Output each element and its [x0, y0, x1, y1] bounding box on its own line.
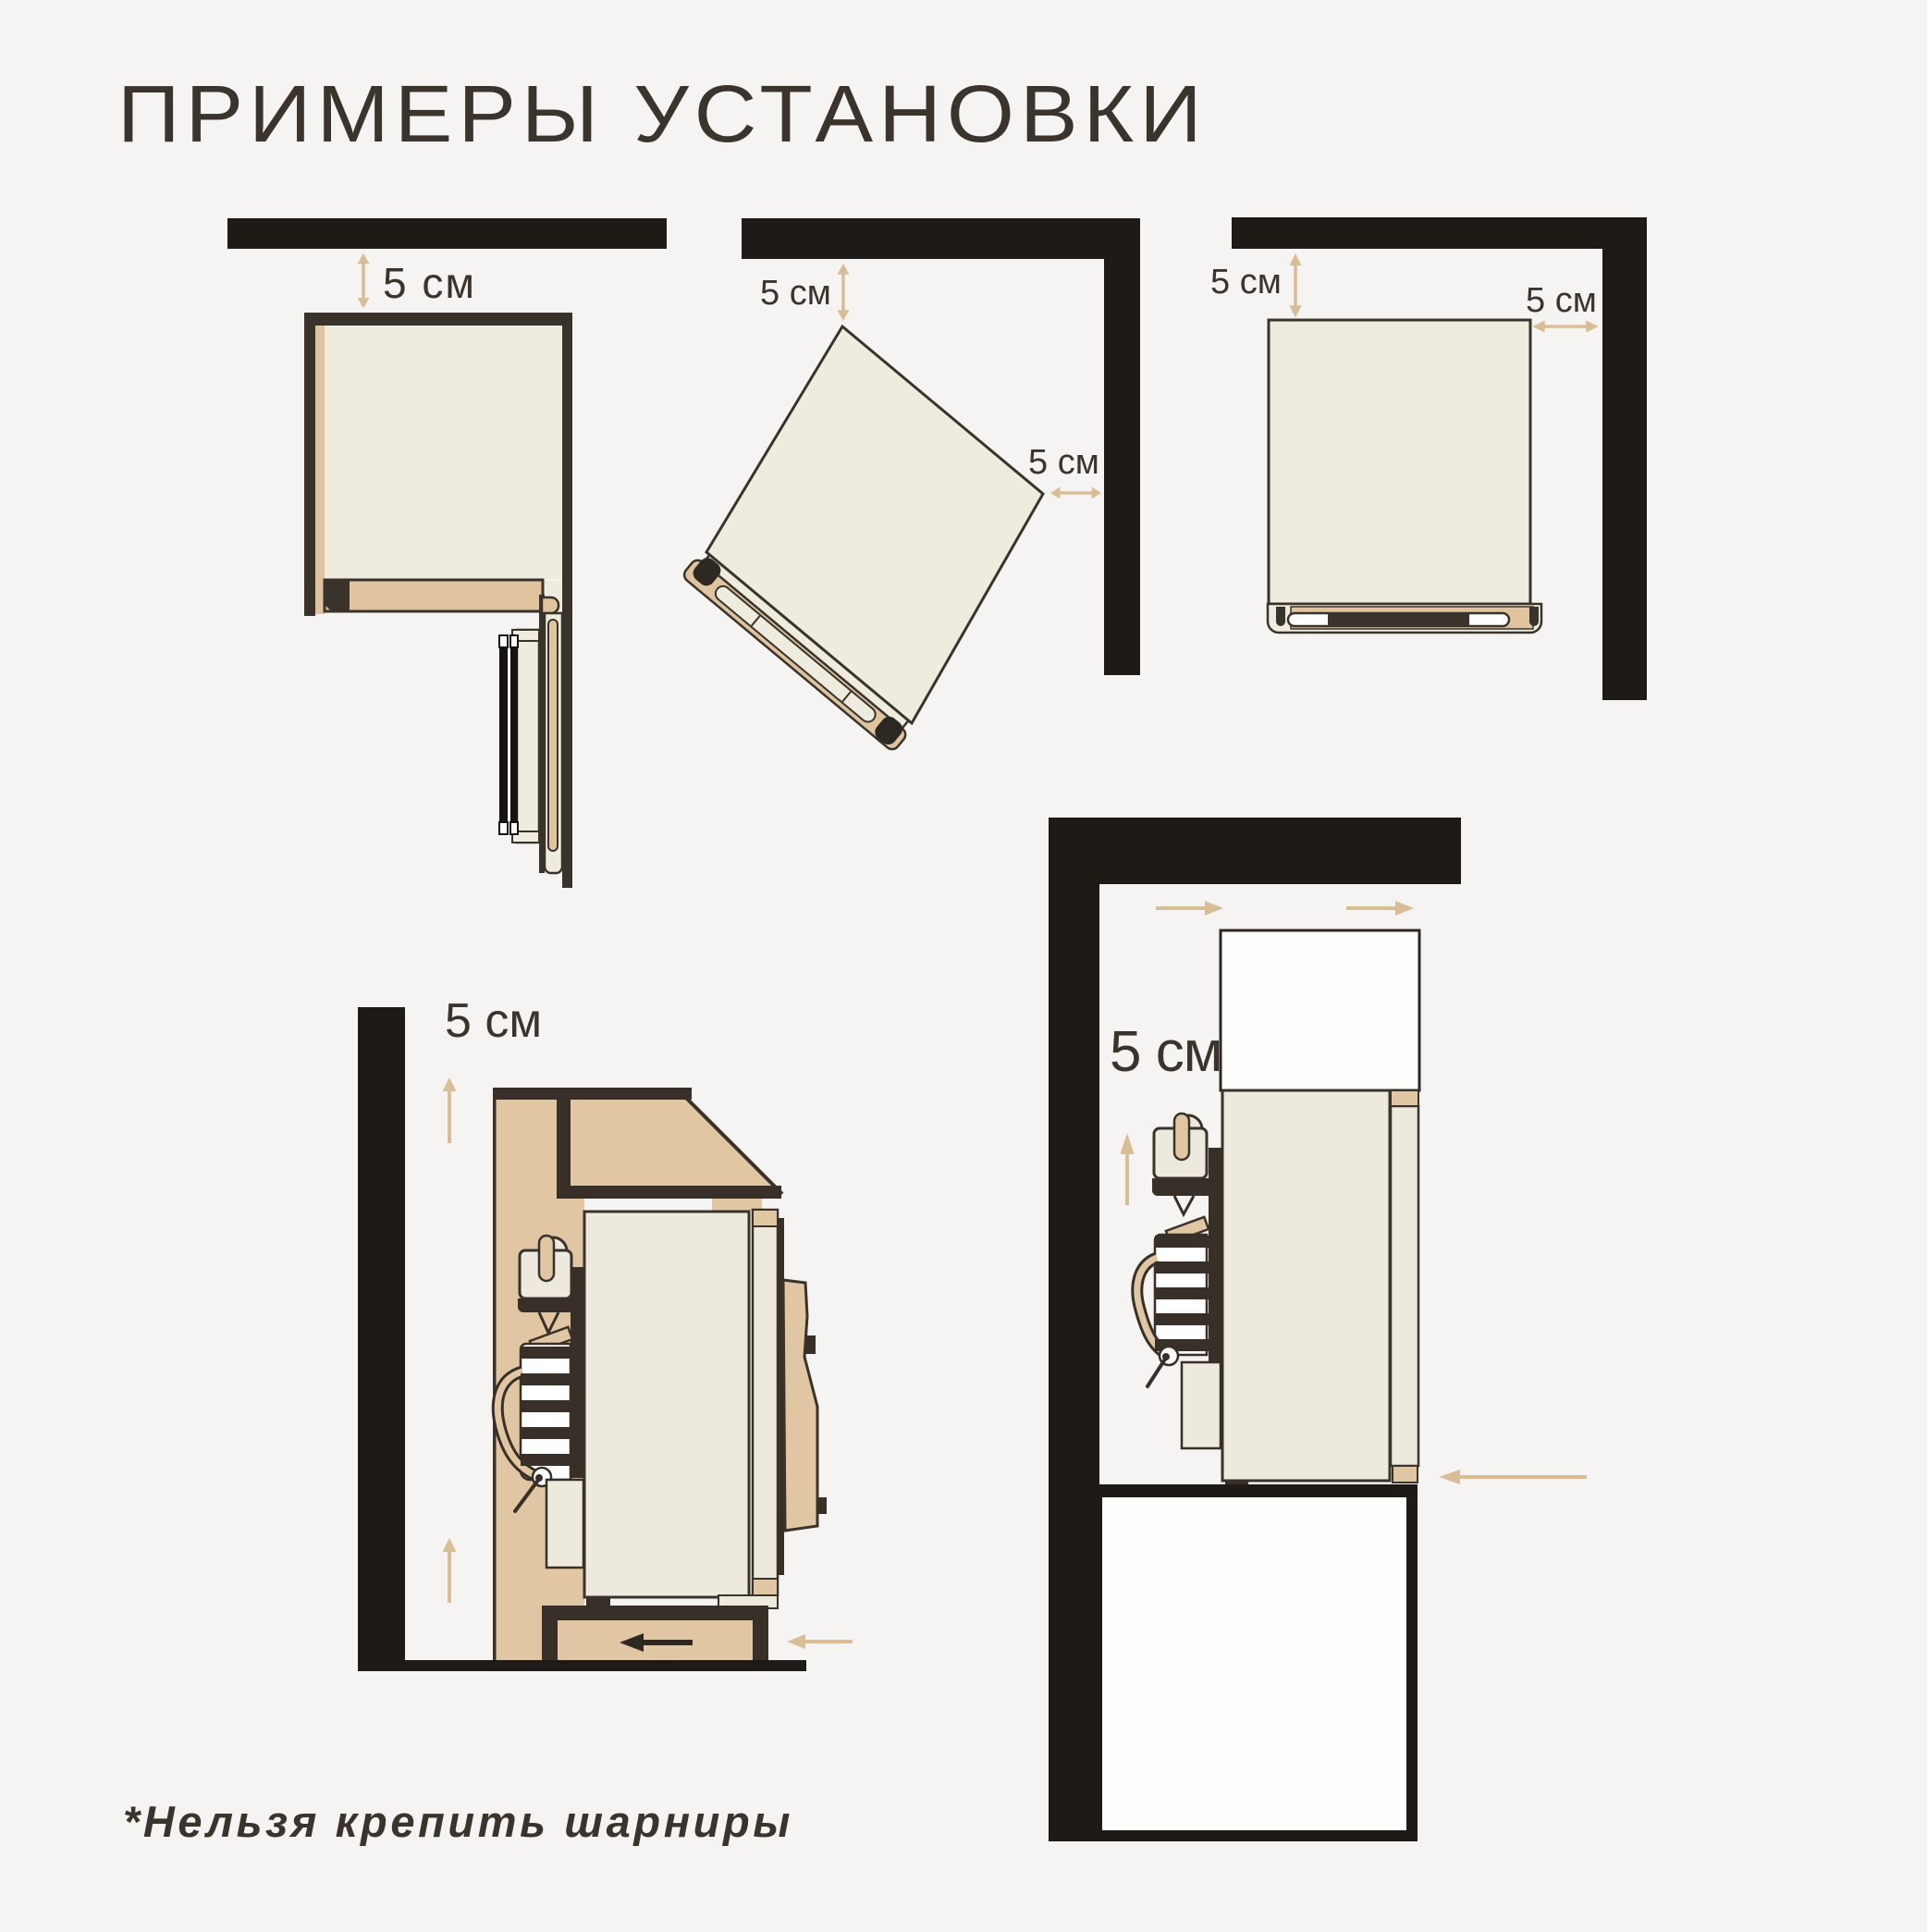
svg-text:ПРИМЕРЫ УСТАНОВКИ: ПРИМЕРЫ УСТАНОВКИ	[117, 69, 1208, 159]
svg-text:*Нельзя крепить шарниры: *Нельзя крепить шарниры	[123, 1797, 793, 1846]
svg-text:5 см: 5 см	[1110, 1020, 1221, 1084]
svg-text:5 см: 5 см	[1210, 263, 1282, 301]
svg-text:5 см: 5 см	[445, 994, 542, 1048]
svg-text:5 см: 5 см	[1526, 281, 1597, 320]
svg-text:5 см: 5 см	[383, 259, 476, 307]
svg-text:5 см: 5 см	[760, 274, 831, 313]
svg-text:5 см: 5 см	[1028, 443, 1099, 482]
